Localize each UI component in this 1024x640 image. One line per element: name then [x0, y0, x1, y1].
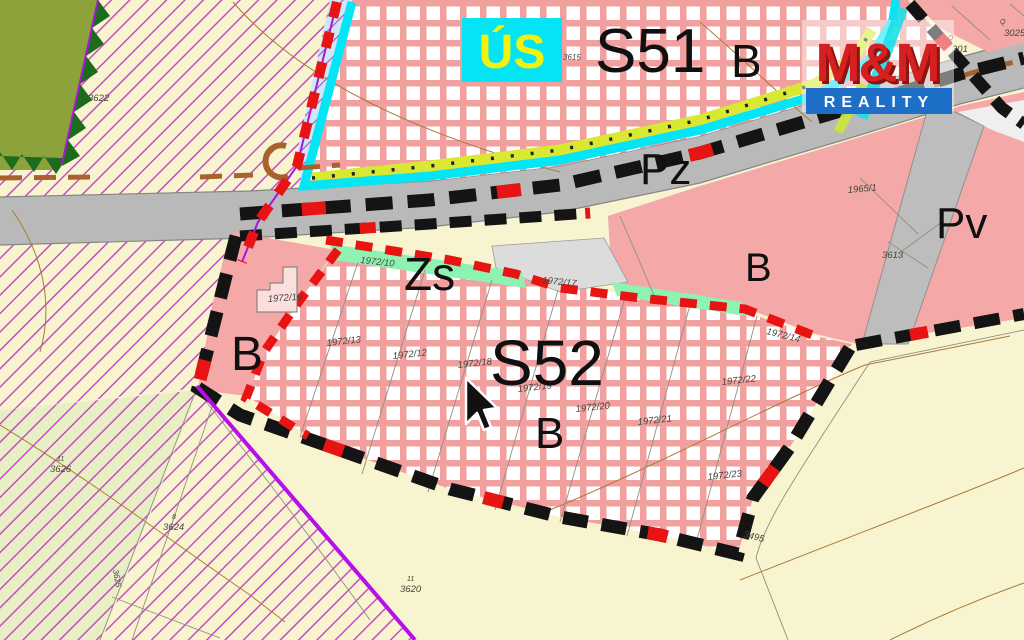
parcel-label-3624: 3624 [163, 522, 184, 533]
parcel-label-3620: 3620 [400, 584, 422, 595]
us-badge-text: ÚS [479, 24, 546, 79]
parcel-label-3626: 3626 [50, 464, 72, 475]
zone-label-b-s52: B [535, 409, 564, 458]
parcel-label-3622: 3622 [88, 93, 110, 104]
logo-subtitle: REALITY [824, 94, 934, 111]
us-study-badge: ÚS [462, 18, 562, 82]
parcel-sup-3624: 8 [172, 514, 176, 521]
zone-label-b-left: B [231, 328, 263, 381]
zone-label-b-right: B [745, 246, 772, 290]
zone-label-pv: Pv [936, 199, 987, 248]
map-viewport[interactable]: 3622 3615 1965/1 3613 Q 301 Q 3025 1972/… [0, 0, 1024, 640]
parcel-sup-3626: 11 [57, 456, 64, 463]
parcel-label-3615: 3615 [563, 53, 581, 62]
zone-label-s52: S52 [490, 327, 604, 399]
zone-label-s51: S51 [595, 17, 705, 86]
mm-reality-logo: M&M M&M REALITY [802, 8, 954, 132]
parcel-symbol-3025: Q [1000, 19, 1006, 26]
parcel-sup-3620: 11 [407, 576, 414, 583]
parcel-label-3025: 3025 [1004, 28, 1024, 39]
logo-name: M&M [816, 33, 939, 93]
zoning-map: 3622 3615 1965/1 3613 Q 301 Q 3025 1972/… [0, 0, 1024, 640]
zone-label-zs: Zs [404, 248, 455, 300]
zone-label-b-s51: B [731, 35, 762, 87]
parcel-label-301: 301 [952, 44, 968, 55]
zone-label-pz: Pz [640, 145, 691, 194]
parcel-label-3613: 3613 [882, 250, 904, 261]
